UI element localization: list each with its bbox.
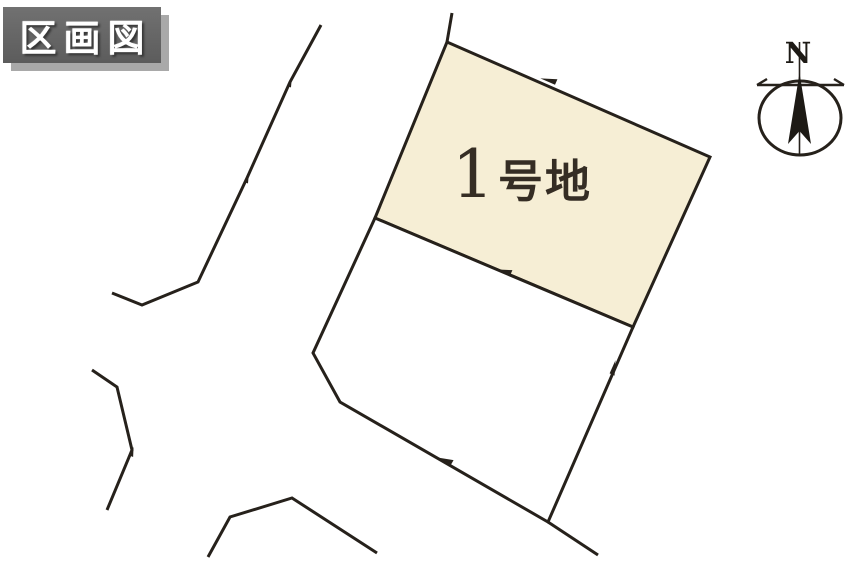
road-southwest [92,370,132,510]
north-label: N [785,36,812,70]
lot-1-suffix: 号地 [498,155,592,208]
boundary-extension-north [447,13,452,42]
boundary-extension-south [548,522,598,555]
title-badge: 区画図 [3,7,161,63]
lot-1-number: 1 [452,136,494,213]
parcels-layer [313,42,710,522]
north-compass-icon: N [757,36,844,156]
road-west [112,25,321,305]
title-badge-label: 区画図 [13,8,152,62]
site-plan-canvas: 1号地 N [0,0,867,570]
road-south [208,498,377,557]
plot-map-page: 1号地 N 区画図 [0,0,867,570]
